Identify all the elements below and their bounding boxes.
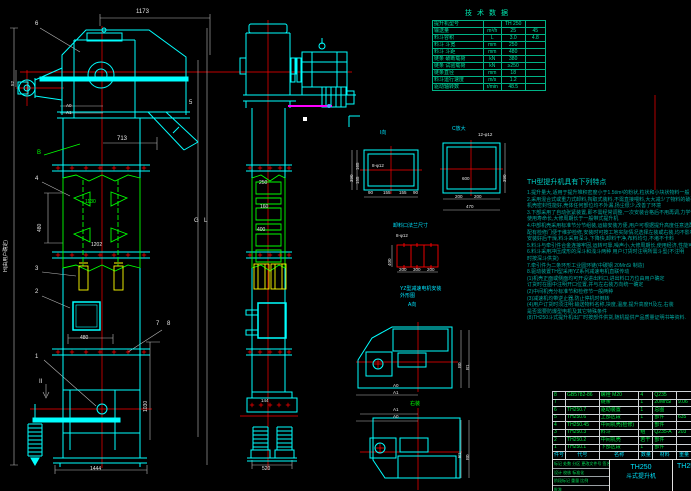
parts-row: 1 TH250.1 下部区段 1 部件 — [553, 444, 691, 452]
tech-cell-unit: mm — [483, 49, 501, 56]
hdr-name: 名称 — [599, 452, 639, 460]
dim-label: 200 — [427, 268, 435, 273]
note-line: 8.驱动装置TH型采用YZ系列减速电机直联传动 — [527, 269, 691, 276]
tech-cell-unit: L — [483, 35, 501, 42]
part-code: TH250.3 — [566, 429, 600, 437]
tech-table-row: 提升机型号 TH 250 — [433, 21, 546, 28]
tech-table-row: 料斗 斗距 mm 480 — [433, 49, 546, 56]
dim-label: 155 — [399, 191, 407, 196]
drive-note-line1: YZ型减速电机安装 — [400, 287, 441, 292]
tech-cell-value: ≥250 — [501, 63, 525, 70]
tech-cell-value: TH 250 — [501, 21, 525, 28]
part-name: 料斗 — [599, 429, 639, 437]
side-elevation-view — [240, 24, 360, 461]
part-weight — [677, 437, 691, 445]
tech-cell-value2 — [525, 70, 545, 77]
tech-cell-unit: mm — [483, 42, 501, 49]
tech-cell-label: 料斗 斗距 — [433, 49, 484, 56]
model-number: TH250 — [610, 463, 672, 473]
part-name: 链条 — [599, 399, 639, 407]
tech-cell-unit: m³/h — [483, 28, 501, 35]
part-name: 中间机壳(检修) — [599, 422, 639, 430]
tech-cell-value: 1.2 — [501, 77, 525, 84]
tech-cell-label: 链条 试验载荷 — [433, 63, 484, 70]
dim-label: 300 — [413, 268, 421, 273]
tech-cell-value: 48.5 — [501, 84, 525, 91]
part-material: 部件 — [653, 437, 677, 445]
dim-label: A1 — [66, 111, 72, 116]
tech-table-row: 链条直径 mm 18 — [433, 70, 546, 77]
tech-cell-value2: 4.8 — [525, 35, 545, 42]
dim-label: 400 — [388, 258, 393, 266]
dim-label: 713 — [117, 136, 127, 142]
part-code: TH250.45 — [566, 422, 600, 430]
tech-cell-value2: 45 — [525, 28, 545, 35]
callout-1: 1 — [35, 354, 38, 360]
part-weight — [677, 392, 691, 400]
tech-cell-label: 驱动轴转数 — [433, 84, 484, 91]
arrangement-label: 右装 — [410, 402, 420, 407]
hdr-weight: 重量 — [677, 452, 691, 460]
title-block-revision-area: 标记 处数 分区 更改文件号 签名 日期 设计 校核 标准化 阶段标记 重量 比… — [553, 460, 610, 491]
drive-top-view-right — [358, 327, 452, 388]
dim-label: A0 — [393, 415, 399, 420]
part-weight: 9.06 — [677, 399, 691, 407]
dim-label: 480 — [80, 336, 88, 341]
title-block: 标记 处数 分区 更改文件号 签名 日期 设计 校核 标准化 阶段标记 重量 比… — [552, 459, 691, 491]
part-code: TH250.6 — [566, 414, 600, 422]
part-qty: 1 — [639, 399, 653, 407]
tech-cell-value: 250 — [501, 42, 525, 49]
part-material: Q235-A — [653, 429, 677, 437]
tech-cell-value: 18 — [501, 70, 525, 77]
part-no: 7 — [553, 399, 566, 407]
dim-label-height: H(由用户确定) — [4, 240, 9, 272]
left-elevation-view — [18, 28, 198, 467]
note-line: 4.中部机壳采用标准节分节组装,运输安装方便,用户可根据提升高度任意选配,机壳密… — [527, 223, 691, 230]
dim-label: 520 — [262, 467, 270, 472]
dim-label: 200 — [474, 195, 482, 200]
title-block-row: 批准 — [553, 486, 609, 491]
parts-row: 4 TH250.45 中间机壳(检修) 部件 — [553, 422, 691, 430]
note-line: 安装好后干燥,料斗采用深斗,下降快,卸料干净,布料均匀,不堵不卡料 — [527, 236, 691, 243]
part-code: TH250.7 — [566, 407, 600, 415]
dim-label: 250 — [259, 181, 267, 186]
dim-label: 470 — [466, 205, 474, 210]
part-qty: 若干 — [639, 437, 653, 445]
tech-cell-value2 — [525, 21, 545, 28]
title-block-row: 标记 处数 分区 更改文件号 签名 日期 — [553, 460, 609, 469]
note-line: (4)用户订货时须注明:输送物料名称,块度,温度,提升高度H及左,右装 — [527, 302, 691, 309]
tech-cell-unit: kN — [483, 56, 501, 63]
dim-label: 165 — [356, 162, 361, 170]
part-weight: 635 — [677, 414, 691, 422]
title-block-name-cell: TH250 斗式提升机 — [610, 460, 673, 491]
hole-callout: 8-φ12 — [372, 164, 384, 169]
tech-cell-value: 380 — [501, 56, 525, 63]
parts-row: 7 链条 1 20MnSi 9.06 — [553, 399, 691, 407]
tech-table-row: 输送量 m³/h 25 45 — [433, 28, 546, 35]
part-name: 螺栓 M20 — [599, 392, 639, 400]
tech-cell-unit: r/min — [483, 84, 501, 91]
dim-label: A0 — [393, 384, 399, 389]
tech-table-row: 料斗 斗宽 mm 250 — [433, 42, 546, 49]
hole-callout: 12-φ12 — [478, 133, 492, 138]
note-line: 时按深斗供货) — [527, 256, 691, 263]
dim-label: 400 — [257, 228, 265, 233]
hole-callout: 8-φ12 — [396, 234, 408, 239]
part-code — [566, 399, 600, 407]
tech-cell-value2 — [525, 63, 545, 70]
note-line: (8)TH250斗式提升机出厂时按部件供货,随机提供产品质量证明书等资料. — [527, 315, 691, 322]
technical-data-table: 技术数据 提升机型号 TH 250 输送量 m³/h 25 45 料斗容积 L … — [430, 8, 548, 91]
part-no: 3 — [553, 429, 566, 437]
part-qty: 1 — [639, 444, 653, 452]
part-material: 部件 — [653, 444, 677, 452]
parts-row: 8 GB5782-86 螺栓 M20 4 Q235 — [553, 392, 691, 400]
tech-cell-value: 480 — [501, 49, 525, 56]
dim-label: 1173 — [136, 9, 149, 15]
part-qty — [639, 422, 653, 430]
part-name: 中间机壳 — [599, 437, 639, 445]
tech-cell-label: 料斗容积 — [433, 35, 484, 42]
part-material: 总图 — [653, 407, 677, 415]
tech-table-row: 链条 试验载荷 kN ≥250 — [433, 63, 546, 70]
view-label-i: I向 — [380, 131, 386, 136]
dim-label: 144 — [261, 399, 269, 404]
part-weight — [677, 422, 691, 430]
drawing-number: TH250 — [673, 460, 691, 491]
note-line: 6.料斗采用冲压成形的深斗和浅斗两种 用户订货时注明所需斗型(不注明 — [527, 249, 691, 256]
note-line: 1.提升量大,适用于提升堆积密度小于1.5t/m³的粉状,粒状和小块状物料一般 — [527, 190, 691, 197]
tech-table-title: 技术数据 — [430, 8, 548, 18]
note-line: 机壳密封性能好,壳体任何部位均不外漏,扬尘很少,改善了环境 — [527, 203, 691, 210]
dim-label: 480 — [38, 224, 43, 232]
grip-marker — [303, 117, 307, 121]
tech-cell-label: 提升机型号 — [433, 21, 484, 28]
tech-cell-value2 — [525, 56, 545, 63]
note-line: 订货时在图中注明开口位置,并与左右装方向统一确定 — [527, 282, 691, 289]
view-label-c: C放大 — [452, 127, 466, 132]
dim-label: 1130 — [85, 200, 96, 205]
callout-4: 4 — [35, 176, 38, 182]
dim-label: 600 — [462, 177, 470, 182]
tech-cell-label: 料斗运行速度 — [433, 77, 484, 84]
dim-label: B0 — [466, 454, 471, 460]
dim-label: A1 — [393, 408, 399, 413]
note-line: (2)中间机壳分标准节和检修节一般两种 — [527, 289, 691, 296]
note-line: 使用寿命长,大修周期长于一般带式提升机 — [527, 216, 691, 223]
callout-6: 6 — [35, 21, 38, 27]
dim-label: B1 — [458, 452, 463, 458]
title-block-row: 设计 校核 标准化 — [553, 469, 609, 478]
dim-label: B0 — [458, 362, 463, 368]
part-no: 5 — [553, 414, 566, 422]
tech-cell-unit: mm — [483, 70, 501, 77]
section-marker-ii: II — [39, 379, 42, 385]
part-code: TH250.1 — [566, 444, 600, 452]
parts-list: 8 GB5782-86 螺栓 M20 4 Q235 7 链条 1 20MnSi … — [552, 391, 691, 460]
tech-cell-unit: m/s — [483, 77, 501, 84]
dim-label: 52 — [11, 81, 16, 86]
product-name: 斗式提升机 — [610, 473, 672, 481]
dim-label: A0 — [66, 104, 72, 109]
tech-cell-value2 — [525, 42, 545, 49]
part-code: GB5782-86 — [566, 392, 600, 400]
tech-cell-value2 — [525, 84, 545, 91]
dim-label: 390 — [503, 174, 508, 182]
callout-8: 8 — [167, 321, 170, 327]
tech-table-row: 链条 破断载荷 kN 380 — [433, 56, 546, 63]
tech-table-row: 料斗运行速度 m/s 1.2 — [433, 77, 546, 84]
part-material: 部件 — [653, 422, 677, 430]
part-material: 部件 — [653, 414, 677, 422]
dim-label: 90 — [368, 191, 373, 196]
hdr-code: 代号 — [566, 452, 600, 460]
dim-label: 160 — [260, 205, 268, 210]
hdr-material: 材料 — [653, 452, 677, 460]
tech-cell-unit — [483, 21, 501, 28]
tech-cell-label: 链条 破断载荷 — [433, 56, 484, 63]
flange-detail-c — [443, 143, 500, 193]
dim-label: 155 — [356, 176, 361, 184]
part-qty: 组 — [639, 429, 653, 437]
dim-label: 1030 — [144, 401, 149, 412]
part-no: 1 — [553, 444, 566, 452]
tech-cell-label: 链条直径 — [433, 70, 484, 77]
tech-cell-value2 — [525, 49, 545, 56]
dim-label: 200 — [455, 195, 463, 200]
part-weight: 203 — [677, 429, 691, 437]
tech-cell-unit: kN — [483, 63, 501, 70]
part-material: Q235 — [653, 392, 677, 400]
hdr-no: 件号 — [553, 452, 566, 460]
parts-row: 3 TH250.3 料斗 组 Q235-A 203 — [553, 429, 691, 437]
view-marker-b: B — [37, 150, 41, 156]
dim-label: B1 — [466, 364, 471, 370]
discharge-flange-detail — [397, 243, 438, 269]
notes-title: TH型提升机具有下列特点 — [527, 179, 691, 187]
dim-label-l: L — [204, 218, 207, 224]
tech-table-row: 料斗容积 L 3.0 4.8 — [433, 35, 546, 42]
parts-row: 2 TH250.2 中间机壳 若干 部件 — [553, 437, 691, 445]
drive-note-line2: 外形图 — [400, 294, 415, 299]
dim-label: 200 — [399, 268, 407, 273]
part-no: 6 — [553, 407, 566, 415]
cad-canvas: 1173 713 6 52 5 B 4 480 1130 1202 3 2 7 … — [0, 0, 691, 491]
outlet-flange-label: 卸料口法兰尺寸 — [393, 224, 428, 229]
parts-header-row: 件号 代号 名称 数量 材料 重量 备注 — [553, 452, 691, 460]
dim-label: 1444 — [90, 467, 101, 472]
part-weight — [677, 407, 691, 415]
dim-label: A1 — [393, 391, 399, 396]
part-name: 上部区段 — [599, 414, 639, 422]
tech-cell-value: 3.0 — [501, 35, 525, 42]
part-name: 驱动装置 — [599, 407, 639, 415]
title-block-row: 阶段标记 重量 比例 — [553, 477, 609, 486]
part-name: 下部区段 — [599, 444, 639, 452]
part-weight — [677, 444, 691, 452]
part-no: 8 — [553, 392, 566, 400]
dim-label: 90 — [413, 191, 418, 196]
part-no: 2 — [553, 437, 566, 445]
tech-table-row: 驱动轴转数 r/min 48.5 — [433, 84, 546, 91]
dim-label: 390 — [350, 174, 355, 182]
part-code: TH250.2 — [566, 437, 600, 445]
dim-label: 155 — [383, 191, 391, 196]
part-qty: 1 — [639, 407, 653, 415]
callout-7: 7 — [156, 321, 159, 327]
parts-row: 6 TH250.7 驱动装置 1 总图 — [553, 407, 691, 415]
dim-label: 1202 — [91, 243, 102, 248]
part-qty: 4 — [639, 392, 653, 400]
part-material: 20MnSi — [653, 399, 677, 407]
tech-cell-label: 输送量 — [433, 28, 484, 35]
callout-2: 2 — [35, 289, 38, 295]
hdr-qty: 数量 — [639, 452, 653, 460]
view-label-a: A向 — [408, 303, 416, 308]
part-qty: 1 — [639, 414, 653, 422]
part-no: 4 — [553, 422, 566, 430]
callout-3: 3 — [35, 266, 38, 272]
tech-cell-label: 料斗 斗宽 — [433, 42, 484, 49]
tech-cell-value2 — [525, 77, 545, 84]
feature-notes: TH型提升机具有下列特点 1.提升量大,适用于提升堆积密度小于1.5t/m³的粉… — [527, 179, 691, 322]
motor-dot — [327, 104, 331, 108]
callout-5: 5 — [189, 100, 192, 106]
tech-cell-value: 25 — [501, 28, 525, 35]
parts-row: 5 TH250.6 上部区段 1 部件 635 — [553, 414, 691, 422]
dim-label-g: G — [194, 218, 199, 224]
